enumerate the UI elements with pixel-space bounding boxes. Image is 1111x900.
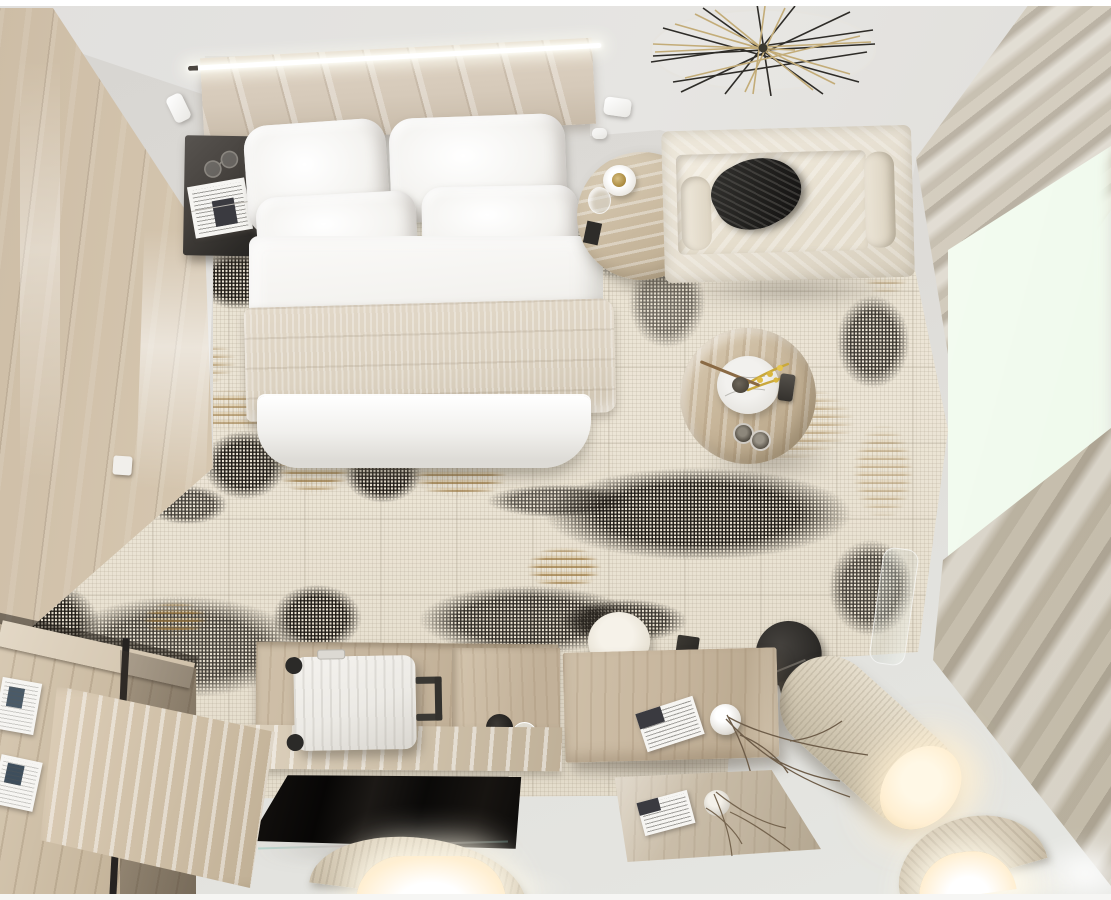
wire-chandelier <box>645 4 881 96</box>
drinking-glass <box>588 187 611 214</box>
frame-bottom <box>0 894 1111 900</box>
ceiling-spotlight-3 <box>592 128 607 139</box>
newspaper <box>187 177 253 238</box>
cup-2 <box>750 430 771 451</box>
step-platform <box>36 684 306 890</box>
bedroom-top-view <box>0 0 1111 900</box>
floor-mirror <box>606 770 821 862</box>
small-bowl <box>732 377 749 393</box>
frame-top <box>0 0 1111 6</box>
ceiling-spotlight-1 <box>165 92 193 125</box>
light-switch <box>112 455 132 475</box>
ceiling-spotlight-2 <box>603 96 632 118</box>
wood-wall-highlight <box>135 229 214 491</box>
bed-duvet-foot <box>257 396 591 468</box>
suitcase <box>293 655 417 751</box>
wood-wall-highlight-2 <box>20 60 60 480</box>
